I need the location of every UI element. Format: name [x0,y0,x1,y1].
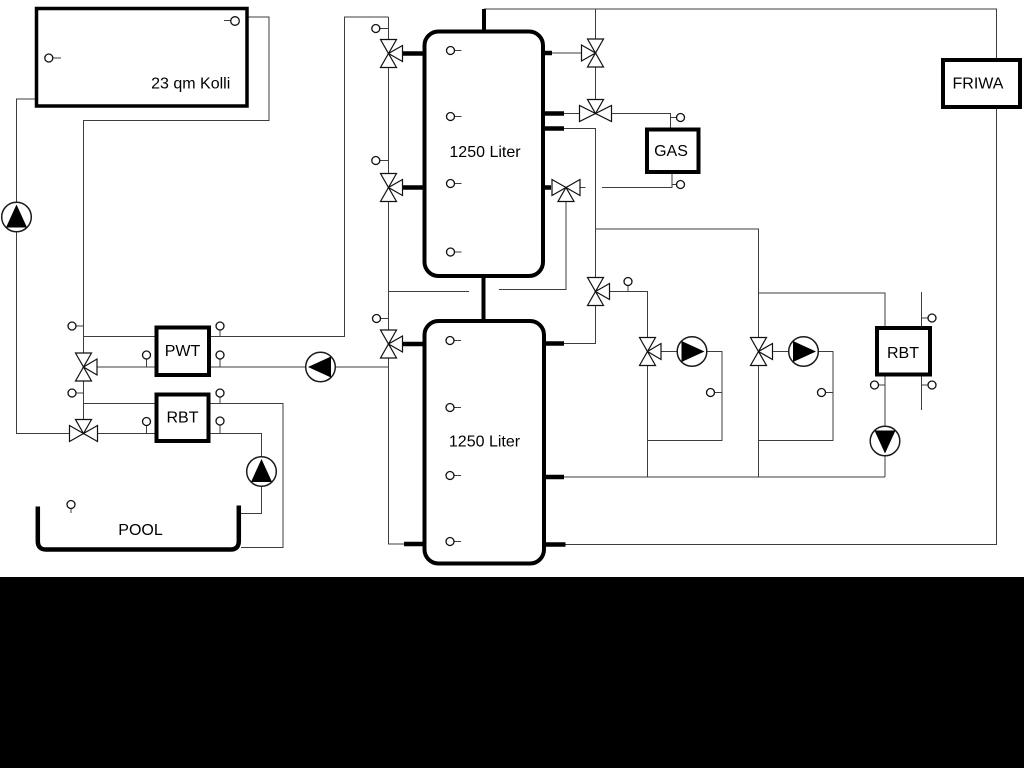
svg-text:23 qm Kolli: 23 qm Kolli [151,76,230,93]
svg-text:1250 Liter: 1250 Liter [449,434,521,451]
svg-text:GAS: GAS [654,143,688,160]
svg-text:RBT: RBT [887,345,919,362]
svg-text:POOL: POOL [118,522,163,539]
svg-text:RBT: RBT [167,410,199,427]
svg-text:1250 Liter: 1250 Liter [449,144,521,161]
svg-text:FRIWA: FRIWA [953,76,1004,93]
svg-text:PWT: PWT [165,343,201,360]
